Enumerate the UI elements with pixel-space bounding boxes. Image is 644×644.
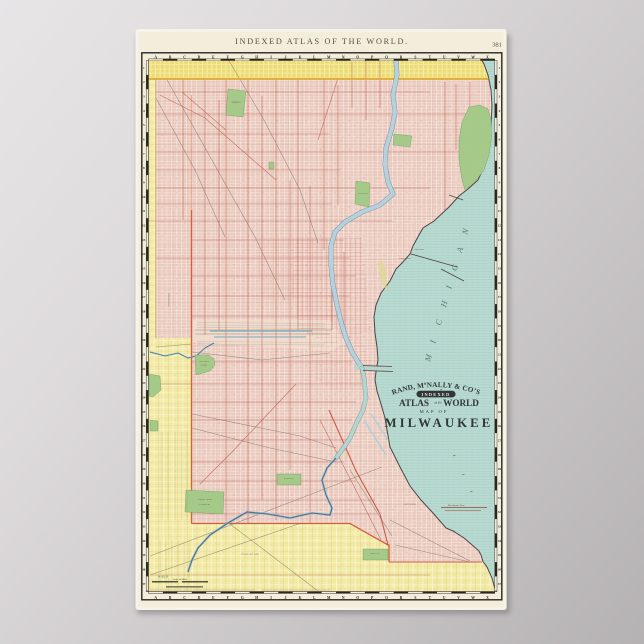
svg-text:25: 25 [142,410,146,414]
svg-text:37: 37 [142,582,146,586]
svg-text:19: 19 [498,324,502,328]
svg-text:14: 14 [498,252,502,256]
svg-text:H: H [255,596,258,600]
svg-text:35: 35 [498,553,502,557]
svg-text:34: 34 [498,539,502,543]
svg-text:12: 12 [142,224,146,228]
svg-text:10: 10 [498,195,502,199]
svg-text:21: 21 [498,353,502,357]
svg-text:M: M [327,596,331,600]
svg-text:27: 27 [142,439,146,443]
svg-text:13: 13 [498,238,502,242]
svg-text:C: C [183,596,186,600]
svg-text:17: 17 [498,295,502,299]
svg-text:23: 23 [142,381,146,385]
svg-text:26: 26 [142,424,146,428]
svg-text:O: O [356,596,359,600]
svg-text:28: 28 [142,453,146,457]
svg-text:20: 20 [142,338,146,342]
svg-text:31: 31 [142,496,146,500]
svg-text:V: V [457,596,460,600]
svg-text:28: 28 [498,453,502,457]
svg-text:17: 17 [142,295,146,299]
svg-text:11: 11 [498,209,501,213]
svg-text:31: 31 [498,496,502,500]
svg-text:20: 20 [498,338,502,342]
svg-text:D: D [198,596,201,600]
svg-text:35: 35 [142,553,146,557]
svg-text:22: 22 [498,367,502,371]
svg-text:K: K [299,596,302,600]
svg-text:Q: Q [385,596,388,600]
svg-text:29: 29 [498,467,502,471]
svg-text:32: 32 [498,510,502,514]
svg-text:16: 16 [498,281,502,285]
svg-text:U: U [443,596,446,600]
svg-text:10: 10 [142,195,146,199]
svg-text:22: 22 [142,367,146,371]
svg-text:29: 29 [142,467,146,471]
svg-text:30: 30 [142,482,146,486]
svg-text:381: 381 [492,42,502,49]
svg-text:R: R [400,596,403,600]
svg-text:34: 34 [142,539,146,543]
svg-text:30: 30 [498,482,502,486]
svg-text:G: G [241,596,244,600]
svg-text:36: 36 [498,568,502,572]
svg-text:26: 26 [498,424,502,428]
svg-text:33: 33 [498,525,502,529]
svg-text:19: 19 [142,324,146,328]
svg-text:18: 18 [498,310,502,314]
svg-text:14: 14 [142,252,146,256]
svg-text:12: 12 [498,224,502,228]
svg-text:23: 23 [498,381,502,385]
svg-text:A: A [154,596,157,600]
svg-text:18: 18 [142,310,146,314]
svg-text:15: 15 [498,267,502,271]
svg-text:24: 24 [498,396,502,400]
svg-text:36: 36 [142,568,146,572]
svg-text:INDEXED ATLAS OF THE WORLD.: INDEXED ATLAS OF THE WORLD. [235,37,409,46]
svg-text:21: 21 [142,353,146,357]
svg-text:11: 11 [142,209,145,213]
svg-text:32: 32 [142,510,146,514]
svg-text:N: N [342,596,345,600]
svg-text:24: 24 [142,396,146,400]
svg-text:13: 13 [142,238,146,242]
svg-text:X: X [486,596,489,600]
svg-text:S: S [414,596,416,600]
svg-text:25: 25 [498,410,502,414]
svg-text:27: 27 [498,439,502,443]
svg-text:16: 16 [142,281,146,285]
svg-text:33: 33 [142,525,146,529]
svg-text:W: W [471,596,475,600]
svg-text:15: 15 [142,267,146,271]
svg-text:J: J [285,596,287,600]
svg-text:37: 37 [498,582,502,586]
